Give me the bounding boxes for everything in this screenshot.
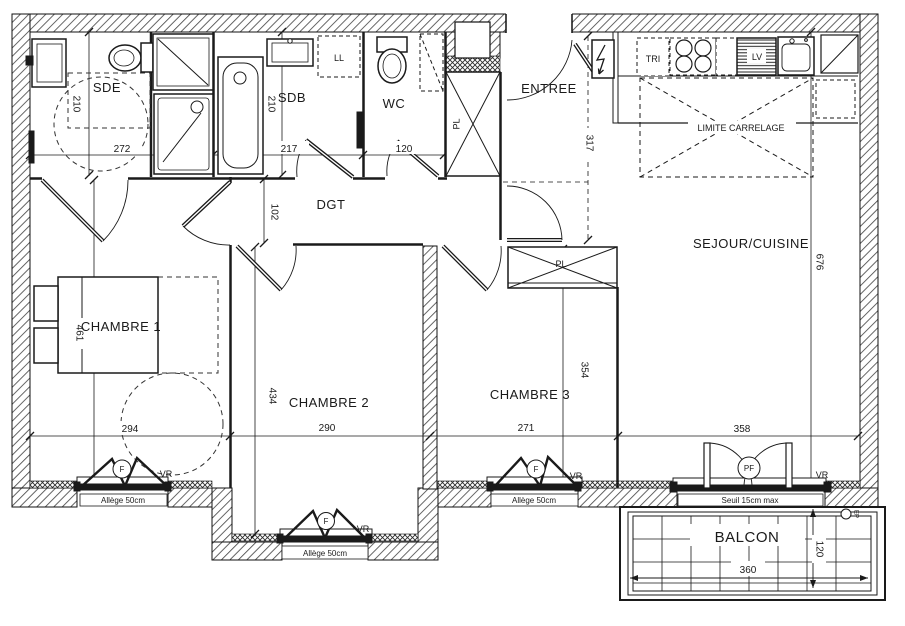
tile-limit-label: LIMITE CARRELAGE xyxy=(697,123,784,133)
sill-label-3: Allège 50cm xyxy=(512,496,556,505)
dishwasher-label: LV xyxy=(752,52,762,62)
dim-chambre3-width: 271 xyxy=(518,423,535,434)
dim-sejour-depth: 676 xyxy=(813,254,824,271)
door-chambre2 xyxy=(237,246,296,290)
sdb-towel-rail xyxy=(357,112,362,148)
sill-label-2: Allège 50cm xyxy=(303,549,347,558)
room-label-sejour: SEJOUR/CUISINE xyxy=(693,236,809,251)
shutter-label-2: VR xyxy=(357,524,370,534)
threshold-label: Seuil 15cm max xyxy=(722,496,779,505)
room-label-chambre2: CHAMBRE 2 xyxy=(289,395,369,410)
room-label-entree: ENTREE xyxy=(521,81,577,96)
shutter-label-4: VR xyxy=(816,470,829,480)
wash-machine-label: LL xyxy=(334,53,344,63)
shutter-label-1: VR xyxy=(160,469,173,479)
duct-niche xyxy=(455,22,490,58)
floorplan-sheet: SDE 210 272 SDB 210 217 WC 120 ENTREE 31… xyxy=(0,0,905,626)
electrical-panel xyxy=(575,40,614,78)
room-label-chambre3: CHAMBRE 3 xyxy=(490,387,570,402)
sde-toilet-tank xyxy=(141,43,153,72)
room-label-dgt: DGT xyxy=(317,197,346,212)
sde-towel-rail xyxy=(29,131,34,163)
room-label-sde: SDE xyxy=(93,80,121,95)
nightstand xyxy=(34,328,58,363)
rainwater-label: EP xyxy=(852,510,858,518)
room-label-wc: WC xyxy=(383,96,406,111)
room-label-sdb: SDB xyxy=(278,90,306,105)
door-entree-sejour xyxy=(507,186,562,240)
dim-chambre2-width: 290 xyxy=(319,423,336,434)
sde-washbasin-tap xyxy=(26,56,33,65)
dim-entree-depth: 317 xyxy=(583,135,594,152)
door-chambre1 xyxy=(183,182,230,245)
wc-shelf xyxy=(420,34,443,91)
window-f-label-1: F xyxy=(120,465,125,474)
sill-label-1: Allège 50cm xyxy=(101,496,145,505)
balcony xyxy=(620,507,885,600)
window-f-label-2: F xyxy=(324,517,329,526)
room-label-balcon: BALCON xyxy=(715,529,780,546)
door-chambre3 xyxy=(443,246,501,290)
dim-wc-width: 120 xyxy=(396,144,413,155)
room-label-chambre1: CHAMBRE 1 xyxy=(81,319,161,334)
nightstand xyxy=(34,286,58,321)
dim-chambre2-depth: 434 xyxy=(266,388,277,405)
dim-sejour-width: 358 xyxy=(734,424,751,435)
kitchen-appliances xyxy=(618,35,858,118)
rainwater-pipe xyxy=(841,509,851,519)
dim-balcon-depth: 120 xyxy=(813,541,824,558)
dim-sde-width: 272 xyxy=(114,144,131,155)
dim-chambre1-width: 294 xyxy=(122,424,139,435)
window-pf-label: PF xyxy=(744,464,754,473)
shutter-label-3: VR xyxy=(570,471,583,481)
wc-fixtures xyxy=(377,34,443,91)
dim-balcon-width: 360 xyxy=(740,565,757,576)
waste-sorting-label: TRI xyxy=(646,54,661,64)
dim-chambre3-depth: 354 xyxy=(578,362,589,379)
entry-door-opening xyxy=(506,13,572,33)
dim-sde-depth: 210 xyxy=(70,96,81,113)
door-sde xyxy=(42,180,128,241)
dim-chambre1-depth: 461 xyxy=(73,325,84,342)
floorplan-drawing: SDE 210 272 SDB 210 217 WC 120 ENTREE 31… xyxy=(0,0,905,626)
dim-dgt-width: 102 xyxy=(268,204,279,221)
closet-label-pl1: PL xyxy=(451,118,461,129)
window-f-label-3: F xyxy=(534,465,539,474)
dim-sdb-depth: 210 xyxy=(265,96,276,113)
dim-sdb-width: 217 xyxy=(281,144,298,155)
closet-label-pl2: PL xyxy=(555,259,566,269)
